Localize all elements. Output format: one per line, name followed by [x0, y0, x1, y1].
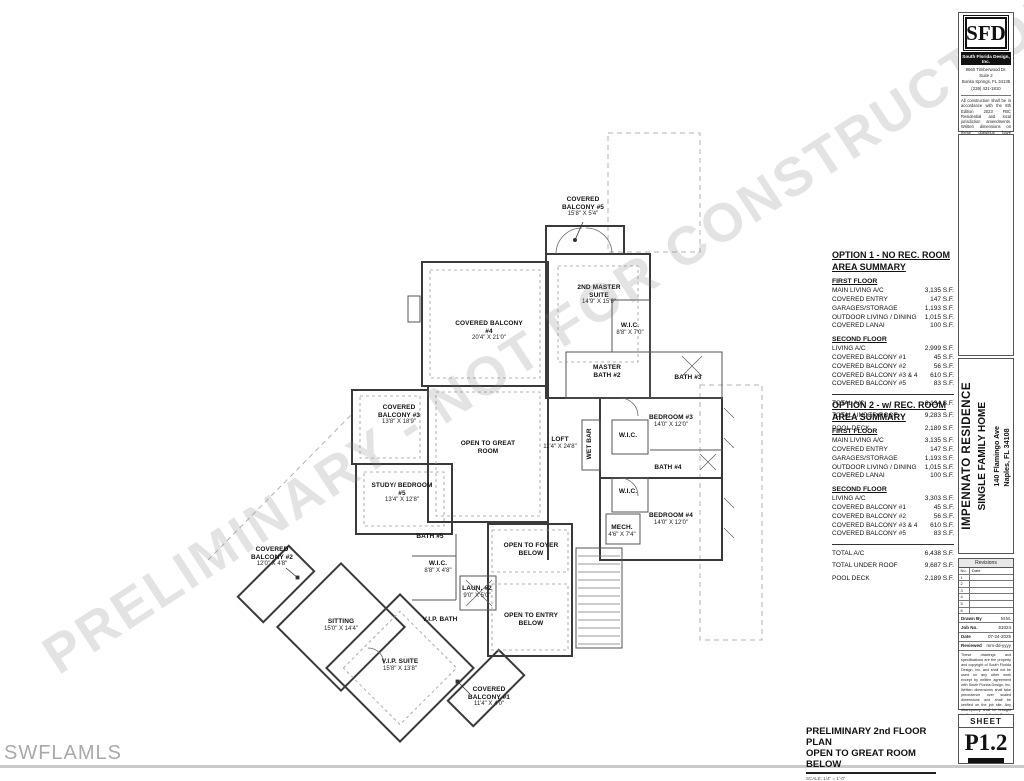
- exterior-walls: [238, 226, 722, 742]
- summary-row: MAIN LIVING A/C3,135 S.F.: [832, 437, 954, 446]
- room-label-wic-master: W.I.C.8'8" X 7'0": [610, 322, 650, 337]
- titleblock-empty-box: [958, 134, 1014, 356]
- summary-row: OUTDOOR LIVING / DINING1,015 S.F.: [832, 464, 954, 473]
- room-label-wic-bedroom-3: W.I.C.: [610, 432, 646, 440]
- room-label-covered-balcony-5: COVERED BALCONY #515'8" X 5'4": [552, 196, 614, 218]
- summary-title: OPTION 1 - NO REC. ROOMAREA SUMMARY: [832, 250, 954, 273]
- plan-title-line1: PRELIMINARY 2nd FLOOR PLAN: [806, 727, 936, 749]
- address-line: Bonita Springs, FL 34135: [959, 79, 1013, 85]
- revisions-rows: 1 2 3 4 5 6: [959, 575, 1013, 615]
- address-line: (239) 431-1810: [959, 86, 1013, 92]
- room-label-wet-bar: WET BAR: [586, 427, 594, 461]
- summary-row: COVERED LANAI100 S.F.: [832, 322, 954, 331]
- plan-title-line2: OPEN TO GREAT ROOM BELOW: [806, 749, 936, 771]
- room-label-bath-3: BATH #3: [668, 374, 708, 382]
- summary-row: GARAGES/STORAGE1,193 S.F.: [832, 455, 954, 464]
- room-label-open-to-great-room: OPEN TO GREAT ROOM: [459, 440, 517, 455]
- summary-title: OPTION 2 - w/ REC. ROOMAREA SUMMARY: [832, 400, 954, 423]
- revision-row: 6: [959, 608, 1013, 615]
- room-label-covered-balcony-4: COVERED BALCONY #420'4" X 21'0": [453, 320, 525, 342]
- revision-row: 5: [959, 601, 1013, 608]
- summary-row: COVERED BALCONY #3 & 4610 S.F.: [832, 522, 954, 531]
- meta-row: Reviewedmm-dd-yyyy: [959, 642, 1013, 651]
- sheet-meta-rows: Drawn ByM.M.Job No.61024Date07-24-2025Re…: [959, 614, 1013, 651]
- revision-row: 3: [959, 588, 1013, 595]
- summary-row: COVERED ENTRY147 S.F.: [832, 296, 954, 305]
- meta-row: Date07-24-2025: [959, 633, 1013, 642]
- summary-row: TOTAL A/C6,438 S.F.: [832, 548, 954, 560]
- summary-row: COVERED BALCONY #256 S.F.: [832, 363, 954, 372]
- plan-scale: SCALE: 1/4" = 1'-0": [806, 776, 936, 781]
- room-label-covered-balcony-1: COVERED BALCONY #111'4" X 4'0": [456, 686, 522, 708]
- titleblock-revisions-box: Revisions No. Date 1 2 3 4 5 6 Drawn ByM…: [958, 558, 1014, 710]
- summary-row: COVERED BALCONY #3 & 4610 S.F.: [832, 372, 954, 381]
- project-city: Naples, FL 34108: [1002, 426, 1011, 487]
- company-address: 9660 Timberwood Dr. Suite 2 Bonita Sprin…: [959, 67, 1013, 92]
- summary-section: FIRST FLOORMAIN LIVING A/C3,135 S.F.COVE…: [832, 278, 954, 331]
- summary-row: GARAGES/STORAGE1,193 S.F.: [832, 305, 954, 314]
- summary-row: MAIN LIVING A/C3,135 S.F.: [832, 287, 954, 296]
- project-title: IMPENNATO RESIDENCE SINGLE FAMILY HOME 1…: [959, 359, 1013, 553]
- meta-row: Job No.61024: [959, 623, 1013, 632]
- summary-row: COVERED BALCONY #256 S.F.: [832, 513, 954, 522]
- summary-row: COVERED BALCONY #145 S.F.: [832, 504, 954, 513]
- summary-section: FIRST FLOORMAIN LIVING A/C3,135 S.F.COVE…: [832, 428, 954, 481]
- sheet-number: P1.2: [959, 730, 1013, 756]
- titleblock-logo-box: SFD South Florida Design, Inc. 9660 Timb…: [958, 12, 1014, 132]
- room-label-vip-suite: V.I.P. SUITE15'8" X 13'8": [364, 658, 436, 673]
- revision-row: 1: [959, 575, 1013, 582]
- company-name: South Florida Design, Inc.: [961, 52, 1011, 65]
- room-label-laun-2: LAUN. #29'0" X 5'0": [456, 585, 498, 600]
- revisions-col-no: No.: [959, 568, 970, 574]
- room-label-bath-4: BATH #4: [648, 464, 688, 472]
- room-label-wic-vip: W.I.C.8'8" X 4'8": [418, 560, 458, 575]
- project-type: SINGLE FAMILY HOME: [977, 402, 988, 510]
- revision-row: 4: [959, 594, 1013, 601]
- room-label-sitting: SITTING15'0" X 14'4": [305, 618, 377, 633]
- summary-section-header: FIRST FLOOR: [832, 428, 954, 435]
- room-label-vip-bath: V.I.P. BATH: [422, 616, 458, 624]
- titleblock-project-box: IMPENNATO RESIDENCE SINGLE FAMILY HOME 1…: [958, 358, 1014, 554]
- project-name: IMPENNATO RESIDENCE: [961, 382, 973, 530]
- drawing-sheet: { "watermarks": { "diagonal": "PRELIMINA…: [0, 0, 1024, 768]
- stair-treads: [578, 556, 620, 644]
- summary-row: LIVING A/C2,999 S.F.: [832, 345, 954, 354]
- summary-section-header: SECOND FLOOR: [832, 486, 954, 493]
- summary-row: TOTAL UNDER ROOF9,687 S.F.: [832, 560, 954, 572]
- revision-row: 2: [959, 581, 1013, 588]
- summary-row: COVERED BALCONY #145 S.F.: [832, 354, 954, 363]
- sfd-logo: SFD: [965, 17, 1007, 49]
- summary-section-header: SECOND FLOOR: [832, 336, 954, 343]
- sheet-bar: [968, 758, 1004, 763]
- area-summary-option-2: OPTION 2 - w/ REC. ROOMAREA SUMMARYFIRST…: [832, 400, 954, 585]
- room-label-covered-balcony-2: COVERED BALCONY #212'0" X 4'8": [239, 546, 305, 568]
- summary-section: SECOND FLOORLIVING A/C3,303 S.F.COVERED …: [832, 486, 954, 539]
- revisions-col-date: Date: [970, 568, 1013, 574]
- revisions-title: Revisions: [959, 559, 1013, 568]
- room-label-open-to-entry-below: OPEN TO ENTRY BELOW: [502, 612, 560, 627]
- mls-watermark: SWFLAMLS: [4, 742, 122, 765]
- room-label-covered-balcony-3: COVERED BALCONY #313'8" X 18'9": [366, 404, 432, 426]
- summary-row: COVERED ENTRY147 S.F.: [832, 446, 954, 455]
- room-label-bedroom-3: BEDROOM #314'0" X 12'0": [630, 414, 712, 429]
- summary-section: SECOND FLOORLIVING A/C2,999 S.F.COVERED …: [832, 336, 954, 389]
- room-label-second-master-suite: 2ND MASTER SUITE14'9" X 15'9": [567, 284, 631, 306]
- room-label-study-bedroom-5: STUDY/ BEDROOM #513'4" X 12'8": [368, 482, 436, 504]
- summary-row: COVERED LANAI100 S.F.: [832, 472, 954, 481]
- room-label-master-bath-2: MASTER BATH #2: [585, 364, 629, 379]
- room-label-open-to-foyer-below: OPEN TO FOYER BELOW: [502, 542, 560, 557]
- summary-row: LIVING A/C3,303 S.F.: [832, 495, 954, 504]
- summary-section-header: FIRST FLOOR: [832, 278, 954, 285]
- titleblock-sheet-box: SHEET P1.2: [958, 714, 1014, 764]
- summary-row: POOL DECK2,189 S.F.: [832, 573, 954, 585]
- summary-row: COVERED BALCONY #583 S.F.: [832, 530, 954, 539]
- room-label-bath-5: BATH #5: [410, 533, 450, 541]
- project-address: 140 Flamingo Ave Naples, FL 34108: [992, 426, 1011, 487]
- revisions-header: No. Date: [959, 568, 1013, 575]
- sheet-label: SHEET: [959, 715, 1013, 728]
- plan-title-lines: PRELIMINARY 2nd FLOOR PLAN OPEN TO GREAT…: [806, 727, 936, 774]
- summary-totals: TOTAL A/C6,438 S.F.TOTAL UNDER ROOF9,687…: [832, 544, 954, 585]
- room-label-loft: LOFT11'4" X 24'8": [537, 436, 583, 451]
- summary-row: COVERED BALCONY #583 S.F.: [832, 380, 954, 389]
- room-label-wic-bedroom-4: W.I.C.: [610, 488, 646, 496]
- summary-row: OUTDOOR LIVING / DINING1,015 S.F.: [832, 314, 954, 323]
- room-label-mech: MECH.4'6" X 7'4": [602, 524, 642, 539]
- meta-row: Drawn ByM.M.: [959, 614, 1013, 623]
- project-street: 140 Flamingo Ave: [992, 426, 1001, 487]
- plan-title-block: PRELIMINARY 2nd FLOOR PLAN OPEN TO GREAT…: [806, 727, 936, 781]
- room-label-bedroom-4: BEDROOM #414'0" X 12'0": [630, 512, 712, 527]
